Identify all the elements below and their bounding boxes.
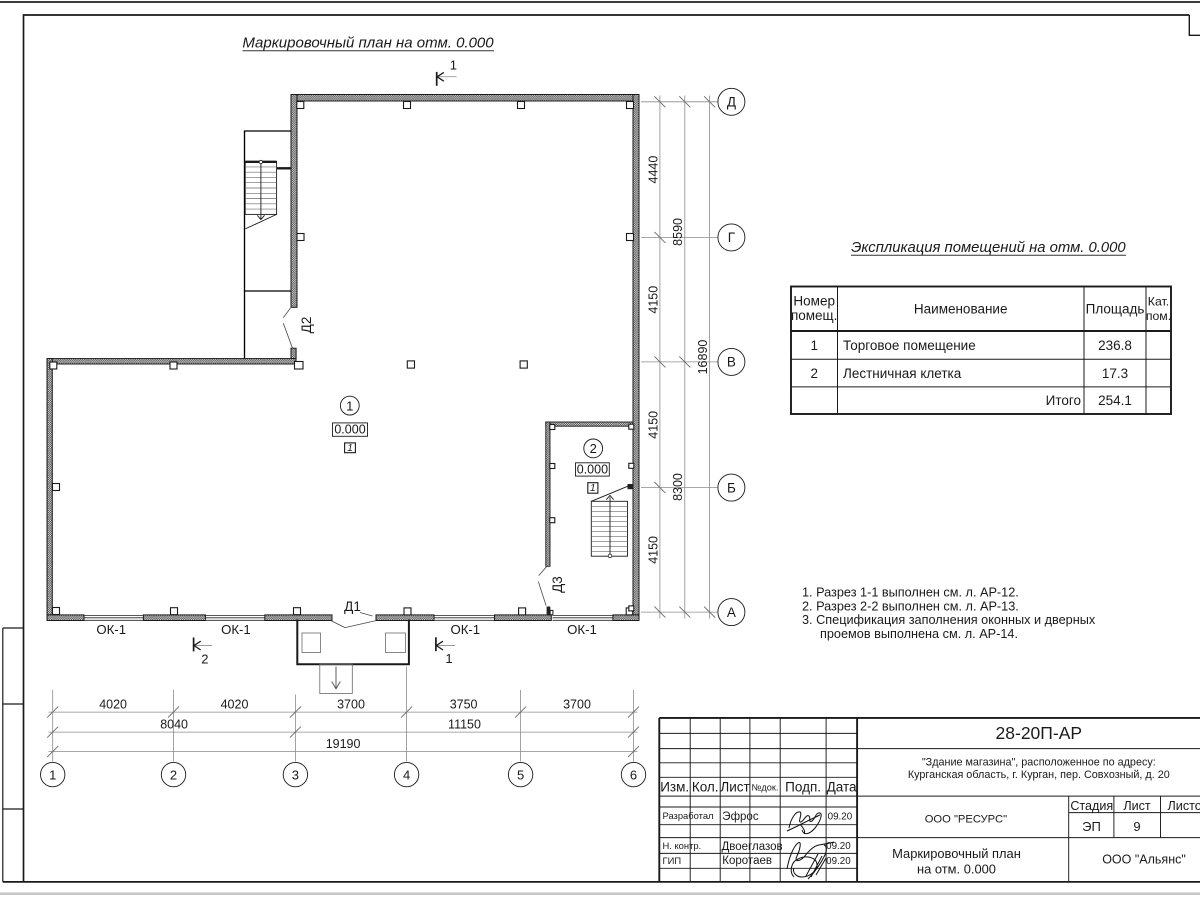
svg-text:9: 9: [1133, 819, 1140, 834]
svg-text:помещ.: помещ.: [791, 308, 837, 323]
svg-text:236.8: 236.8: [1098, 338, 1132, 353]
svg-text:А: А: [727, 605, 736, 620]
svg-text:3: 3: [292, 767, 299, 782]
svg-text:ОК-1: ОК-1: [96, 622, 126, 637]
svg-text:6: 6: [630, 767, 637, 782]
svg-text:Кол.: Кол.: [692, 780, 719, 795]
svg-text:1: 1: [810, 338, 818, 353]
svg-text:17.3: 17.3: [1102, 366, 1128, 381]
svg-text:ГИП: ГИП: [663, 855, 682, 866]
svg-text:№док.: №док.: [752, 783, 779, 793]
svg-text:3750: 3750: [450, 698, 478, 712]
svg-text:ОК-1: ОК-1: [450, 622, 480, 637]
svg-text:Коротаев: Коротаев: [722, 855, 772, 867]
svg-text:ООО "Альянс": ООО "Альянс": [1102, 853, 1186, 867]
svg-text:3. Спецификация заполнения око: 3. Спецификация заполнения оконных и две…: [802, 613, 1096, 627]
svg-text:Дата: Дата: [827, 780, 857, 795]
svg-text:"Здание магазина", расположенн: "Здание магазина", расположенное по адре…: [922, 756, 1156, 768]
svg-text:Маркировочный план на отм. 0.0: Маркировочный план на отм. 0.000: [242, 35, 494, 52]
svg-text:11150: 11150: [448, 718, 481, 732]
svg-text:Эфрос: Эфрос: [722, 811, 759, 823]
svg-text:ОК-1: ОК-1: [221, 622, 251, 637]
svg-text:Экспликация помещений на отм.: Экспликация помещений на отм. 0.000: [851, 240, 1126, 256]
svg-text:2. Разрез 2-2 выполнен см. л.: 2. Разрез 2-2 выполнен см. л. АР-13.: [802, 599, 1019, 613]
svg-text:Г: Г: [728, 230, 736, 245]
svg-text:8040: 8040: [160, 718, 188, 732]
svg-text:Лестничная клетка: Лестничная клетка: [843, 366, 962, 381]
svg-text:Изм.: Изм.: [660, 780, 689, 795]
svg-text:Д1: Д1: [344, 599, 361, 614]
svg-text:Б: Б: [727, 480, 736, 495]
svg-text:1: 1: [590, 483, 596, 494]
svg-text:16890: 16890: [696, 340, 710, 375]
svg-text:2: 2: [810, 366, 818, 381]
svg-text:1: 1: [347, 443, 353, 454]
svg-text:4150: 4150: [646, 536, 660, 564]
svg-text:на отм. 0.000: на отм. 0.000: [917, 862, 996, 877]
svg-text:Лист: Лист: [720, 780, 749, 795]
svg-text:2: 2: [170, 767, 177, 782]
svg-text:28-20П-АР: 28-20П-АР: [996, 723, 1083, 743]
svg-text:0.000: 0.000: [577, 463, 608, 477]
svg-text:Д3: Д3: [550, 576, 565, 593]
svg-text:8300: 8300: [671, 473, 685, 501]
svg-text:Маркировочный план: Маркировочный план: [892, 846, 1021, 861]
svg-text:4150: 4150: [646, 411, 660, 439]
svg-text:2: 2: [201, 652, 208, 667]
svg-text:0.000: 0.000: [334, 423, 365, 437]
svg-text:4440: 4440: [646, 156, 660, 184]
svg-text:Д2: Д2: [299, 317, 314, 334]
svg-text:1. Разрез 1-1 выполнен см. л.: 1. Разрез 1-1 выполнен см. л. АР-12.: [802, 586, 1019, 600]
svg-text:3700: 3700: [337, 698, 365, 712]
svg-text:4150: 4150: [646, 286, 660, 314]
svg-text:5: 5: [517, 767, 524, 782]
svg-text:Номер: Номер: [793, 294, 835, 309]
svg-text:ЭП: ЭП: [1082, 819, 1101, 834]
svg-text:3700: 3700: [563, 698, 591, 712]
svg-text:Подп.: Подп.: [785, 780, 821, 795]
svg-text:Кат.: Кат.: [1148, 295, 1169, 309]
svg-text:09.20: 09.20: [826, 856, 851, 867]
svg-text:8590: 8590: [671, 218, 685, 246]
svg-text:ОК-1: ОК-1: [567, 622, 597, 637]
svg-text:1: 1: [49, 767, 56, 782]
svg-text:2: 2: [590, 441, 597, 456]
svg-text:1: 1: [450, 58, 457, 73]
svg-text:Курганская область, г. Курган,: Курганская область, г. Курган, пер. Совх…: [908, 769, 1170, 781]
svg-text:Торговое помещение: Торговое помещение: [843, 338, 976, 353]
svg-text:Лист: Лист: [1123, 799, 1151, 813]
svg-text:1: 1: [346, 398, 353, 413]
svg-text:Двоеглазов: Двоеглазов: [722, 841, 783, 853]
svg-text:254.1: 254.1: [1098, 393, 1132, 408]
svg-text:Листов: Листов: [1168, 799, 1200, 813]
svg-text:Площадь: Площадь: [1086, 302, 1145, 317]
svg-text:проемов выполнена см. л. АР-14: проемов выполнена см. л. АР-14.: [820, 627, 1018, 641]
svg-text:4020: 4020: [99, 698, 127, 712]
svg-text:Д: Д: [727, 95, 736, 110]
svg-text:Разработал: Разработал: [663, 810, 714, 821]
svg-text:В: В: [727, 355, 736, 370]
svg-text:Стадия: Стадия: [1070, 799, 1113, 813]
svg-text:Н. контр.: Н. контр.: [663, 840, 702, 851]
svg-text:09.20: 09.20: [828, 811, 853, 822]
svg-text:4: 4: [403, 767, 410, 782]
svg-text:1: 1: [445, 651, 452, 666]
svg-text:19190: 19190: [326, 737, 361, 751]
svg-text:ООО "РЕСУРС": ООО "РЕСУРС": [925, 813, 1007, 825]
svg-text:пом.: пом.: [1146, 309, 1171, 323]
svg-text:Наименование: Наименование: [914, 302, 1008, 317]
svg-text:4020: 4020: [221, 698, 249, 712]
svg-text:Итого: Итого: [1046, 393, 1081, 408]
